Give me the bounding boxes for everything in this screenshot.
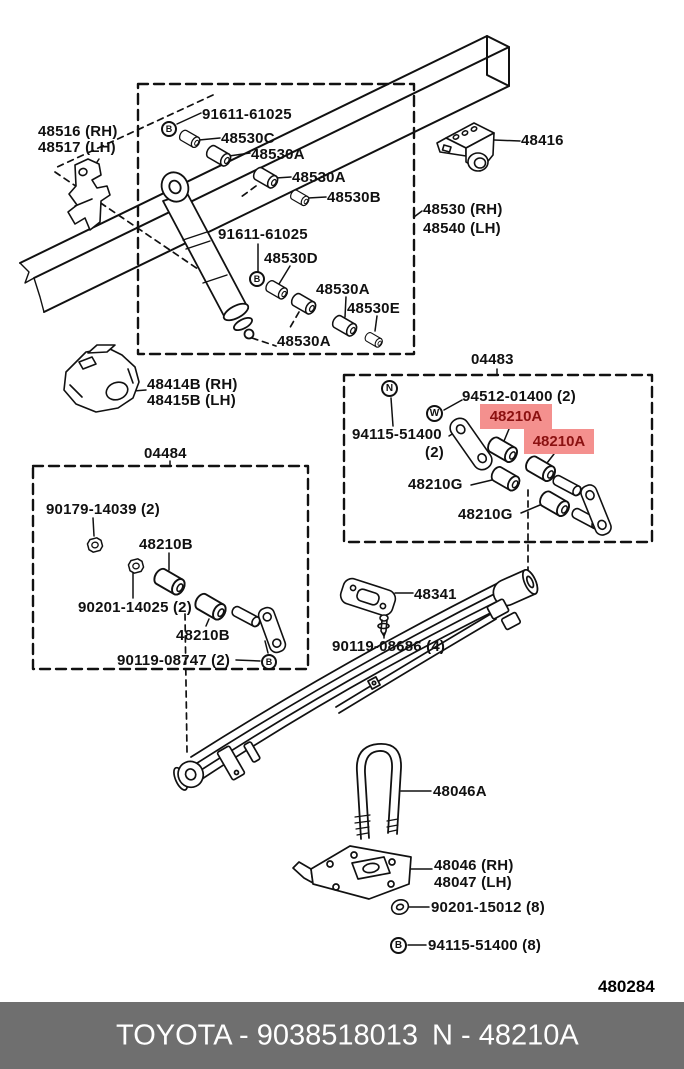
nut-symbol: N bbox=[381, 380, 398, 397]
part-label-48210b: 48210B bbox=[176, 628, 230, 643]
section-label-04484: 04484 bbox=[144, 446, 187, 461]
part-label-48046a: 48046A bbox=[433, 784, 487, 799]
footer-brand-part: TOYOTA - 9038518013 bbox=[116, 1019, 418, 1052]
part-label-48530c: 48530C bbox=[221, 131, 275, 146]
part-number: 48517 (LH) bbox=[38, 140, 118, 156]
highlighted-part-label-48210a[interactable]: 48210A bbox=[524, 429, 594, 454]
part-label-48516-48517: 48516 (RH) 48517 (LH) bbox=[38, 124, 118, 156]
part-label-48414b-48415b: 48414B (RH) 48415B (LH) bbox=[147, 377, 238, 409]
part-label-48210g: 48210G bbox=[408, 477, 463, 492]
bolt-symbol: B bbox=[249, 271, 265, 287]
bolt-symbol: B bbox=[161, 121, 177, 137]
block-48416-drawing bbox=[437, 123, 494, 171]
shock-absorber-drawing bbox=[157, 168, 254, 339]
part-label-90201-15012: 90201-15012 (8) bbox=[431, 900, 545, 915]
part-label-90119-08686: 90119-08686 (4) bbox=[332, 639, 445, 654]
part-number: 48516 (RH) bbox=[38, 124, 118, 140]
bumper-plate-48341-drawing bbox=[338, 576, 397, 636]
part-label-48530a: 48530A bbox=[277, 334, 331, 349]
part-label-48530b: 48530B bbox=[327, 190, 381, 205]
part-number: 48530 (RH) bbox=[423, 201, 503, 220]
bolt-symbol: B bbox=[390, 937, 407, 954]
part-label-90119-08747: 90119-08747 (2) bbox=[117, 653, 230, 668]
part-label-48530-48540: 48530 (RH) 48540 (LH) bbox=[423, 201, 503, 238]
part-label-48416: 48416 bbox=[521, 133, 564, 148]
part-number: 48540 (LH) bbox=[423, 220, 503, 239]
footer-reference: N - 48210A bbox=[432, 1019, 579, 1052]
u-bolt-drawing bbox=[355, 744, 401, 839]
part-number: 48414B (RH) bbox=[147, 377, 238, 393]
section-label-04483: 04483 bbox=[471, 352, 514, 367]
part-number: 48047 (LH) bbox=[434, 874, 514, 891]
part-label-91611-61025: 91611-61025 bbox=[218, 227, 308, 242]
part-label-48530a: 48530A bbox=[292, 170, 346, 185]
part-label-qty: (2) bbox=[425, 445, 444, 460]
part-label-90179-14039: 90179-14039 (2) bbox=[46, 502, 160, 517]
footer-bar: TOYOTA - 9038518013 N - 48210A bbox=[0, 1002, 684, 1069]
part-number: 48415B (LH) bbox=[147, 393, 238, 409]
part-label-48046-48047: 48046 (RH) 48047 (LH) bbox=[434, 857, 514, 891]
part-label-48530d: 48530D bbox=[264, 251, 318, 266]
part-label-90201-14025: 90201-14025 (2) bbox=[78, 600, 192, 615]
parts-diagram-page: B B B B N W 48516 (RH) 48517 (LH) 91611-… bbox=[0, 0, 684, 1069]
part-label-48210g: 48210G bbox=[458, 507, 513, 522]
part-label-48341: 48341 bbox=[414, 587, 457, 602]
part-label-48210b: 48210B bbox=[139, 537, 193, 552]
bolt-symbol: B bbox=[261, 654, 277, 670]
part-label-48530e: 48530E bbox=[347, 301, 400, 316]
bracket-48414-drawing bbox=[64, 345, 139, 412]
part-label-94115-51400: 94115-51400 bbox=[352, 427, 442, 442]
washer-symbol-drawing bbox=[390, 898, 411, 917]
part-label-91611-61025: 91611-61025 bbox=[202, 107, 292, 122]
part-label-94512-01400: 94512-01400 (2) bbox=[462, 389, 576, 404]
spring-seat-48046-drawing bbox=[293, 846, 411, 899]
diagram-line-art bbox=[0, 0, 684, 1069]
part-label-48530a: 48530A bbox=[251, 147, 305, 162]
part-label-48530a: 48530A bbox=[316, 282, 370, 297]
bracket-48516-drawing bbox=[68, 159, 110, 230]
part-label-94115-51400: 94115-51400 (8) bbox=[428, 938, 541, 953]
figure-code: 480284 bbox=[598, 977, 655, 997]
part-number: 48046 (RH) bbox=[434, 857, 514, 874]
highlighted-part-label-48210a[interactable]: 48210A bbox=[480, 404, 552, 429]
washer-symbol: W bbox=[426, 405, 443, 422]
